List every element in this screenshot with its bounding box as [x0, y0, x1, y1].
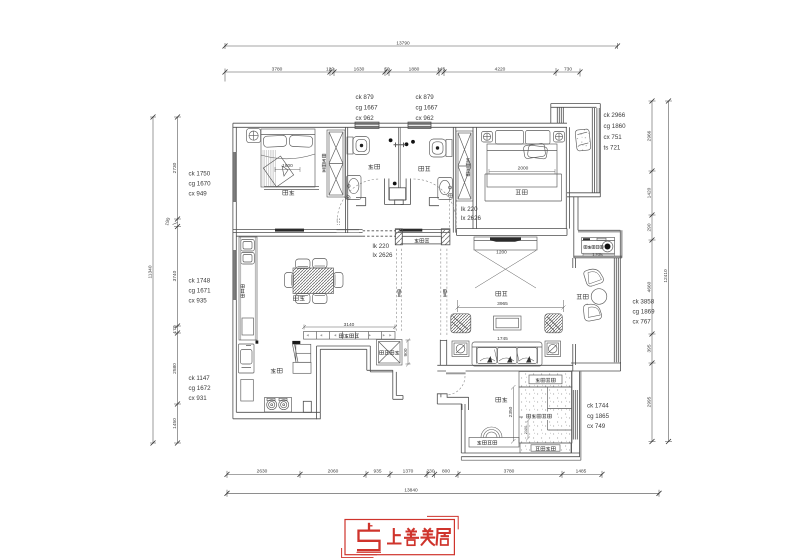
svg-text:3780: 3780: [504, 469, 515, 475]
svg-text:2060: 2060: [328, 469, 339, 475]
svg-text:cx 962: cx 962: [416, 115, 435, 122]
svg-text:cx 931: cx 931: [189, 395, 208, 402]
svg-text:cx 949: cx 949: [189, 191, 208, 198]
svg-text:ck 3858: ck 3858: [633, 299, 655, 306]
svg-text:4660: 4660: [647, 281, 653, 292]
svg-text:290: 290: [647, 223, 653, 231]
svg-text:3965: 3965: [497, 301, 508, 307]
svg-text:cg 1670: cg 1670: [189, 181, 212, 188]
svg-text:1800: 1800: [282, 163, 293, 169]
svg-text:1485: 1485: [576, 469, 587, 475]
svg-text:2630: 2630: [257, 469, 268, 475]
svg-text:cx 749: cx 749: [587, 423, 606, 430]
svg-text:cx 935: cx 935: [189, 298, 208, 305]
svg-text:cx 962: cx 962: [356, 115, 375, 122]
svg-text:1420: 1420: [647, 187, 653, 198]
svg-text:1200: 1200: [496, 250, 507, 256]
svg-text:ck 879: ck 879: [416, 94, 435, 101]
svg-text:395: 395: [647, 344, 653, 352]
svg-text:2120: 2120: [524, 426, 528, 434]
svg-text:190: 190: [164, 217, 172, 227]
svg-text:cg 1667: cg 1667: [416, 105, 439, 112]
svg-text:120: 120: [326, 67, 334, 73]
svg-text:1370: 1370: [403, 469, 414, 475]
svg-text:ck 2966: ck 2966: [604, 112, 626, 119]
svg-text:cx 751: cx 751: [604, 134, 623, 141]
svg-text:3780: 3780: [272, 67, 283, 73]
svg-text:1705: 1705: [592, 252, 603, 258]
svg-text:12410: 12410: [663, 269, 669, 283]
svg-text:2730: 2730: [172, 162, 178, 173]
svg-text:cg 1860: cg 1860: [604, 123, 627, 130]
svg-text:lx 2626: lx 2626: [373, 252, 394, 259]
svg-text:2350: 2350: [508, 406, 514, 417]
svg-text:ck 879: ck 879: [356, 94, 375, 101]
svg-text:4220: 4220: [495, 67, 506, 73]
svg-text:cg 1667: cg 1667: [356, 105, 379, 112]
svg-text:lk 220: lk 220: [461, 206, 478, 213]
svg-text:cg 1672: cg 1672: [189, 385, 212, 392]
svg-text:935: 935: [373, 469, 381, 475]
svg-text:3140: 3140: [344, 322, 355, 328]
svg-text:3740: 3740: [172, 270, 178, 281]
svg-text:ck 1744: ck 1744: [587, 403, 609, 410]
svg-text:11340: 11340: [148, 265, 154, 278]
svg-text:ck 1748: ck 1748: [189, 278, 211, 285]
svg-text:1450: 1450: [172, 418, 178, 429]
svg-text:13840: 13840: [404, 488, 418, 494]
svg-text:800: 800: [442, 469, 450, 475]
svg-text:2000: 2000: [518, 166, 529, 172]
svg-text:2966: 2966: [647, 130, 653, 141]
svg-text:13790: 13790: [396, 41, 410, 47]
svg-text:170: 170: [172, 325, 178, 333]
svg-text:145: 145: [437, 67, 445, 73]
svg-text:ck 1750: ck 1750: [189, 171, 211, 178]
svg-text:ck 1147: ck 1147: [189, 375, 211, 382]
svg-text:lk 220: lk 220: [373, 243, 390, 250]
svg-text:2995: 2995: [647, 396, 653, 407]
svg-text:cg 1671: cg 1671: [189, 288, 212, 295]
svg-text:lx 2626: lx 2626: [461, 215, 482, 222]
svg-text:50: 50: [384, 67, 390, 73]
svg-text:ts 721: ts 721: [604, 145, 621, 152]
svg-text:230: 230: [426, 469, 434, 475]
svg-text:900: 900: [403, 348, 409, 356]
svg-text:1745: 1745: [497, 336, 508, 342]
svg-text:730: 730: [564, 67, 572, 73]
svg-text:cx 767: cx 767: [633, 319, 652, 326]
svg-text:1630: 1630: [354, 67, 365, 73]
svg-text:cg 1869: cg 1869: [633, 309, 656, 316]
svg-text:cg 1865: cg 1865: [587, 413, 610, 420]
svg-text:1880: 1880: [409, 67, 420, 73]
svg-text:2580: 2580: [172, 363, 178, 374]
